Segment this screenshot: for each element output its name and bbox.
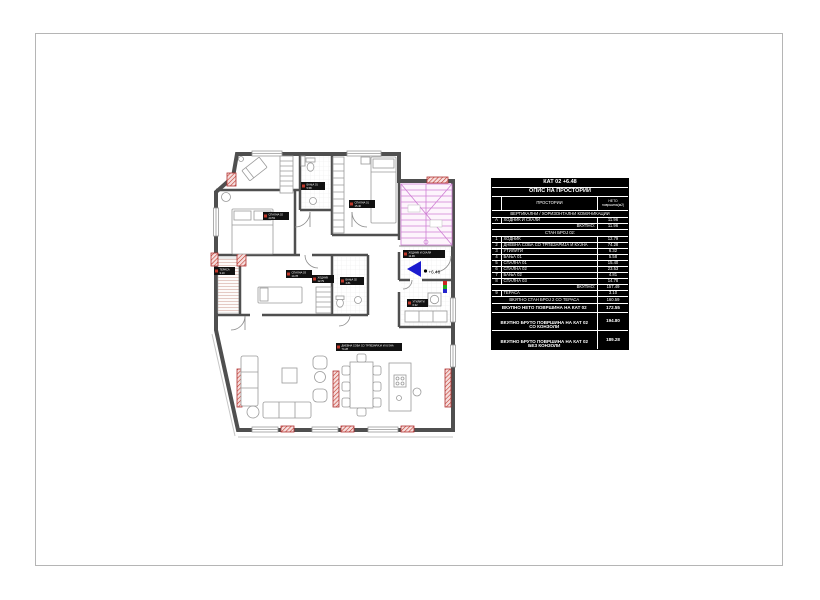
svg-text:11.96: 11.96 (409, 254, 416, 258)
col-header-name: ПРОСТОРИИ (502, 197, 598, 210)
row-name: ХОДНИК И СКАЛИ (502, 218, 598, 223)
level-marker-dot (424, 269, 427, 272)
row-area: 74.28 (598, 243, 628, 248)
total-label-line2: СО КОНЗОЛИ (529, 325, 559, 330)
svg-text:15.40: 15.40 (355, 204, 362, 208)
total-row: ВКУПНО СТАН БРОЈ 2 СО ТЕРАСА 160.59 (492, 297, 628, 304)
wardrobe (280, 156, 293, 193)
table-title-row: КАТ 02 +6.48 (492, 179, 628, 188)
total-value: 189.28 (598, 331, 628, 349)
svg-text:ХОДНИК: ХОДНИК (318, 276, 329, 280)
row-name: БАЊА 01 (502, 255, 598, 260)
row-no: 4 (492, 255, 502, 260)
svg-text:4.81: 4.81 (346, 281, 352, 285)
column-header-row: ПРОСТОРИИ НЕТО површина(м2) (492, 197, 628, 211)
subtotal-label: ВКУПНО: (492, 224, 598, 229)
svg-text:3.10: 3.10 (220, 271, 226, 275)
row-area: 15.40 (598, 261, 628, 266)
svg-text:УТИЛИТИ: УТИЛИТИ (413, 300, 425, 304)
section-label: СТАН БРОЈ 02: (492, 230, 628, 236)
floor-plan-drawing: +6.48 ХОДНИК И СКАЛИ 11.96 БАЊА 01 5.58 … (0, 0, 820, 600)
total-label: ВКУПНО БРУТО ПОВРШИНА НА КАТ 02 СО КОНЗО… (492, 313, 598, 330)
total-label: ВКУПНО БРУТО ПОВРШИНА НА КАТ 02 БЕЗ КОНЗ… (492, 331, 598, 349)
room-tag-banja01: БАЊА 01 5.58 (301, 182, 325, 190)
level-label: +6.48 (429, 270, 441, 275)
room-tag-spalna02: СПАЛНА 02 23.53 (263, 212, 289, 220)
row-no: 9 (492, 291, 502, 296)
subtotal-label: ВКУПНО: (492, 285, 598, 290)
total-row: ВКУПНО БРУТО ПОВРШИНА НА КАТ 02 БЕЗ КОНЗ… (492, 331, 628, 349)
area-spec-table: КАТ 02 +6.48 ОПИС НА ПРОСТОРИИ ПРОСТОРИИ… (491, 178, 629, 350)
room-tag-spalna01: СПАЛНА 01 15.40 (349, 200, 375, 208)
row-name: СПАЛНА 03 (502, 279, 598, 284)
utility-counter (405, 311, 447, 322)
row-area: 14.78 (598, 279, 628, 284)
row-area: 11.96 (598, 218, 628, 223)
svg-text:СПАЛНА 03: СПАЛНА 03 (292, 271, 307, 275)
subtotal-value: 157.49 (598, 285, 628, 290)
total-row: ВКУПНО НЕТО ПОВРШИНА НА КАТ 02 172.55 (492, 304, 628, 313)
washing-machine (428, 293, 441, 306)
total-value: 172.55 (598, 304, 628, 312)
room-tag-spalna03: СПАЛНА 03 14.78 (286, 270, 312, 278)
row-area: 12.79 (598, 237, 628, 242)
subtotal-value: 11.96 (598, 224, 628, 229)
svg-text:СПАЛНА 02: СПАЛНА 02 (269, 213, 284, 217)
row-no: А (492, 218, 502, 223)
row-name: УТИЛИТИ (502, 249, 598, 254)
row-name: СПАЛНА 01 (502, 261, 598, 266)
row-area: 4.81 (598, 273, 628, 278)
svg-text:23.53: 23.53 (269, 216, 276, 220)
svg-text:74.28: 74.28 (342, 347, 349, 351)
wardrobe-strip (333, 157, 344, 233)
section-row-apartment: СТАН БРОЈ 02: (492, 230, 628, 237)
row-name: БАЊА 02 (502, 273, 598, 278)
row-no: 7 (492, 273, 502, 278)
row-area: 3.10 (598, 291, 628, 296)
svg-text:14.78: 14.78 (292, 274, 299, 278)
section-row-communications: ВЕРТИКАЛНИ / ХОРИЗОНТАЛНИ КОМУНИКАЦИИ (492, 211, 628, 218)
col-header-area: НЕТО површина(м2) (598, 197, 628, 210)
svg-text:6.32: 6.32 (413, 303, 419, 307)
svg-text:ДНЕВНА СОБА СО ТРПЕЗАРИЈА И КУ: ДНЕВНА СОБА СО ТРПЕЗАРИЈА И КУЈНА (342, 344, 394, 348)
svg-text:БАЊА 01: БАЊА 01 (307, 183, 319, 187)
total-value: 194.80 (598, 313, 628, 330)
row-no: 3 (492, 249, 502, 254)
total-label-line2: БЕЗ КОНЗОЛИ (528, 344, 560, 349)
row-name: СПАЛНА 02 (502, 267, 598, 272)
svg-text:СПАЛНА 01: СПАЛНА 01 (355, 201, 370, 205)
floorplan-sheet: { "sheet": { "type": "architectural-floo… (0, 0, 820, 600)
row-no: 5 (492, 261, 502, 266)
row-area: 6.32 (598, 249, 628, 254)
svg-text:5.58: 5.58 (307, 186, 313, 190)
row-name: ХОДНИК (502, 237, 598, 242)
row-no: 8 (492, 279, 502, 284)
room-tag-utiliti: УТИЛИТИ 6.32 (407, 299, 428, 307)
table-subtitle: ОПИС НА ПРОСТОРИИ (492, 188, 628, 196)
svg-text:ТЕРАСА: ТЕРАСА (220, 268, 230, 272)
table-subtitle-row: ОПИС НА ПРОСТОРИИ (492, 188, 628, 197)
room-tag-hodnik-i-skali: ХОДНИК И СКАЛИ 11.96 (403, 250, 445, 258)
total-label: ВКУПНО СТАН БРОЈ 2 СО ТЕРАСА (492, 297, 598, 303)
terrace-decking (218, 258, 239, 313)
total-row: ВКУПНО БРУТО ПОВРШИНА НА КАТ 02 СО КОНЗО… (492, 313, 628, 331)
table-title: КАТ 02 +6.48 (492, 179, 628, 187)
room-tag-hodnik: ХОДНИК 12.79 (312, 275, 334, 283)
svg-text:ХОДНИК И СКАЛИ: ХОДНИК И СКАЛИ (409, 251, 432, 255)
row-no: 2 (492, 243, 502, 248)
total-label: ВКУПНО НЕТО ПОВРШИНА НА КАТ 02 (492, 304, 598, 312)
rgb-marker-icon (443, 281, 447, 293)
row-name: ТЕРАСА (502, 291, 598, 296)
room-tag-terasa: ТЕРАСА 3.10 (214, 267, 235, 275)
staircase (401, 184, 452, 245)
svg-text:БАЊА 02: БАЊА 02 (346, 278, 358, 282)
total-value: 160.59 (598, 297, 628, 303)
coffee-table (282, 368, 297, 383)
row-no: 6 (492, 267, 502, 272)
room-tag-dnevna-soba: ДНЕВНА СОБА СО ТРПЕЗАРИЈА И КУЈНА 74.28 (336, 343, 402, 351)
col-header-no (492, 197, 502, 210)
svg-text:12.79: 12.79 (318, 279, 325, 283)
row-no: 1 (492, 237, 502, 242)
row-name: ДНЕВНА СОБА СО ТРПЕЗАРИЈА И КУЈНА (502, 243, 598, 248)
section-label: ВЕРТИКАЛНИ / ХОРИЗОНТАЛНИ КОМУНИКАЦИИ (492, 211, 628, 217)
col-header-area-line2: површина(м2) (602, 204, 624, 208)
row-area: 5.58 (598, 255, 628, 260)
row-area: 23.53 (598, 267, 628, 272)
room-tag-banja02: БАЊА 02 4.81 (340, 277, 364, 285)
